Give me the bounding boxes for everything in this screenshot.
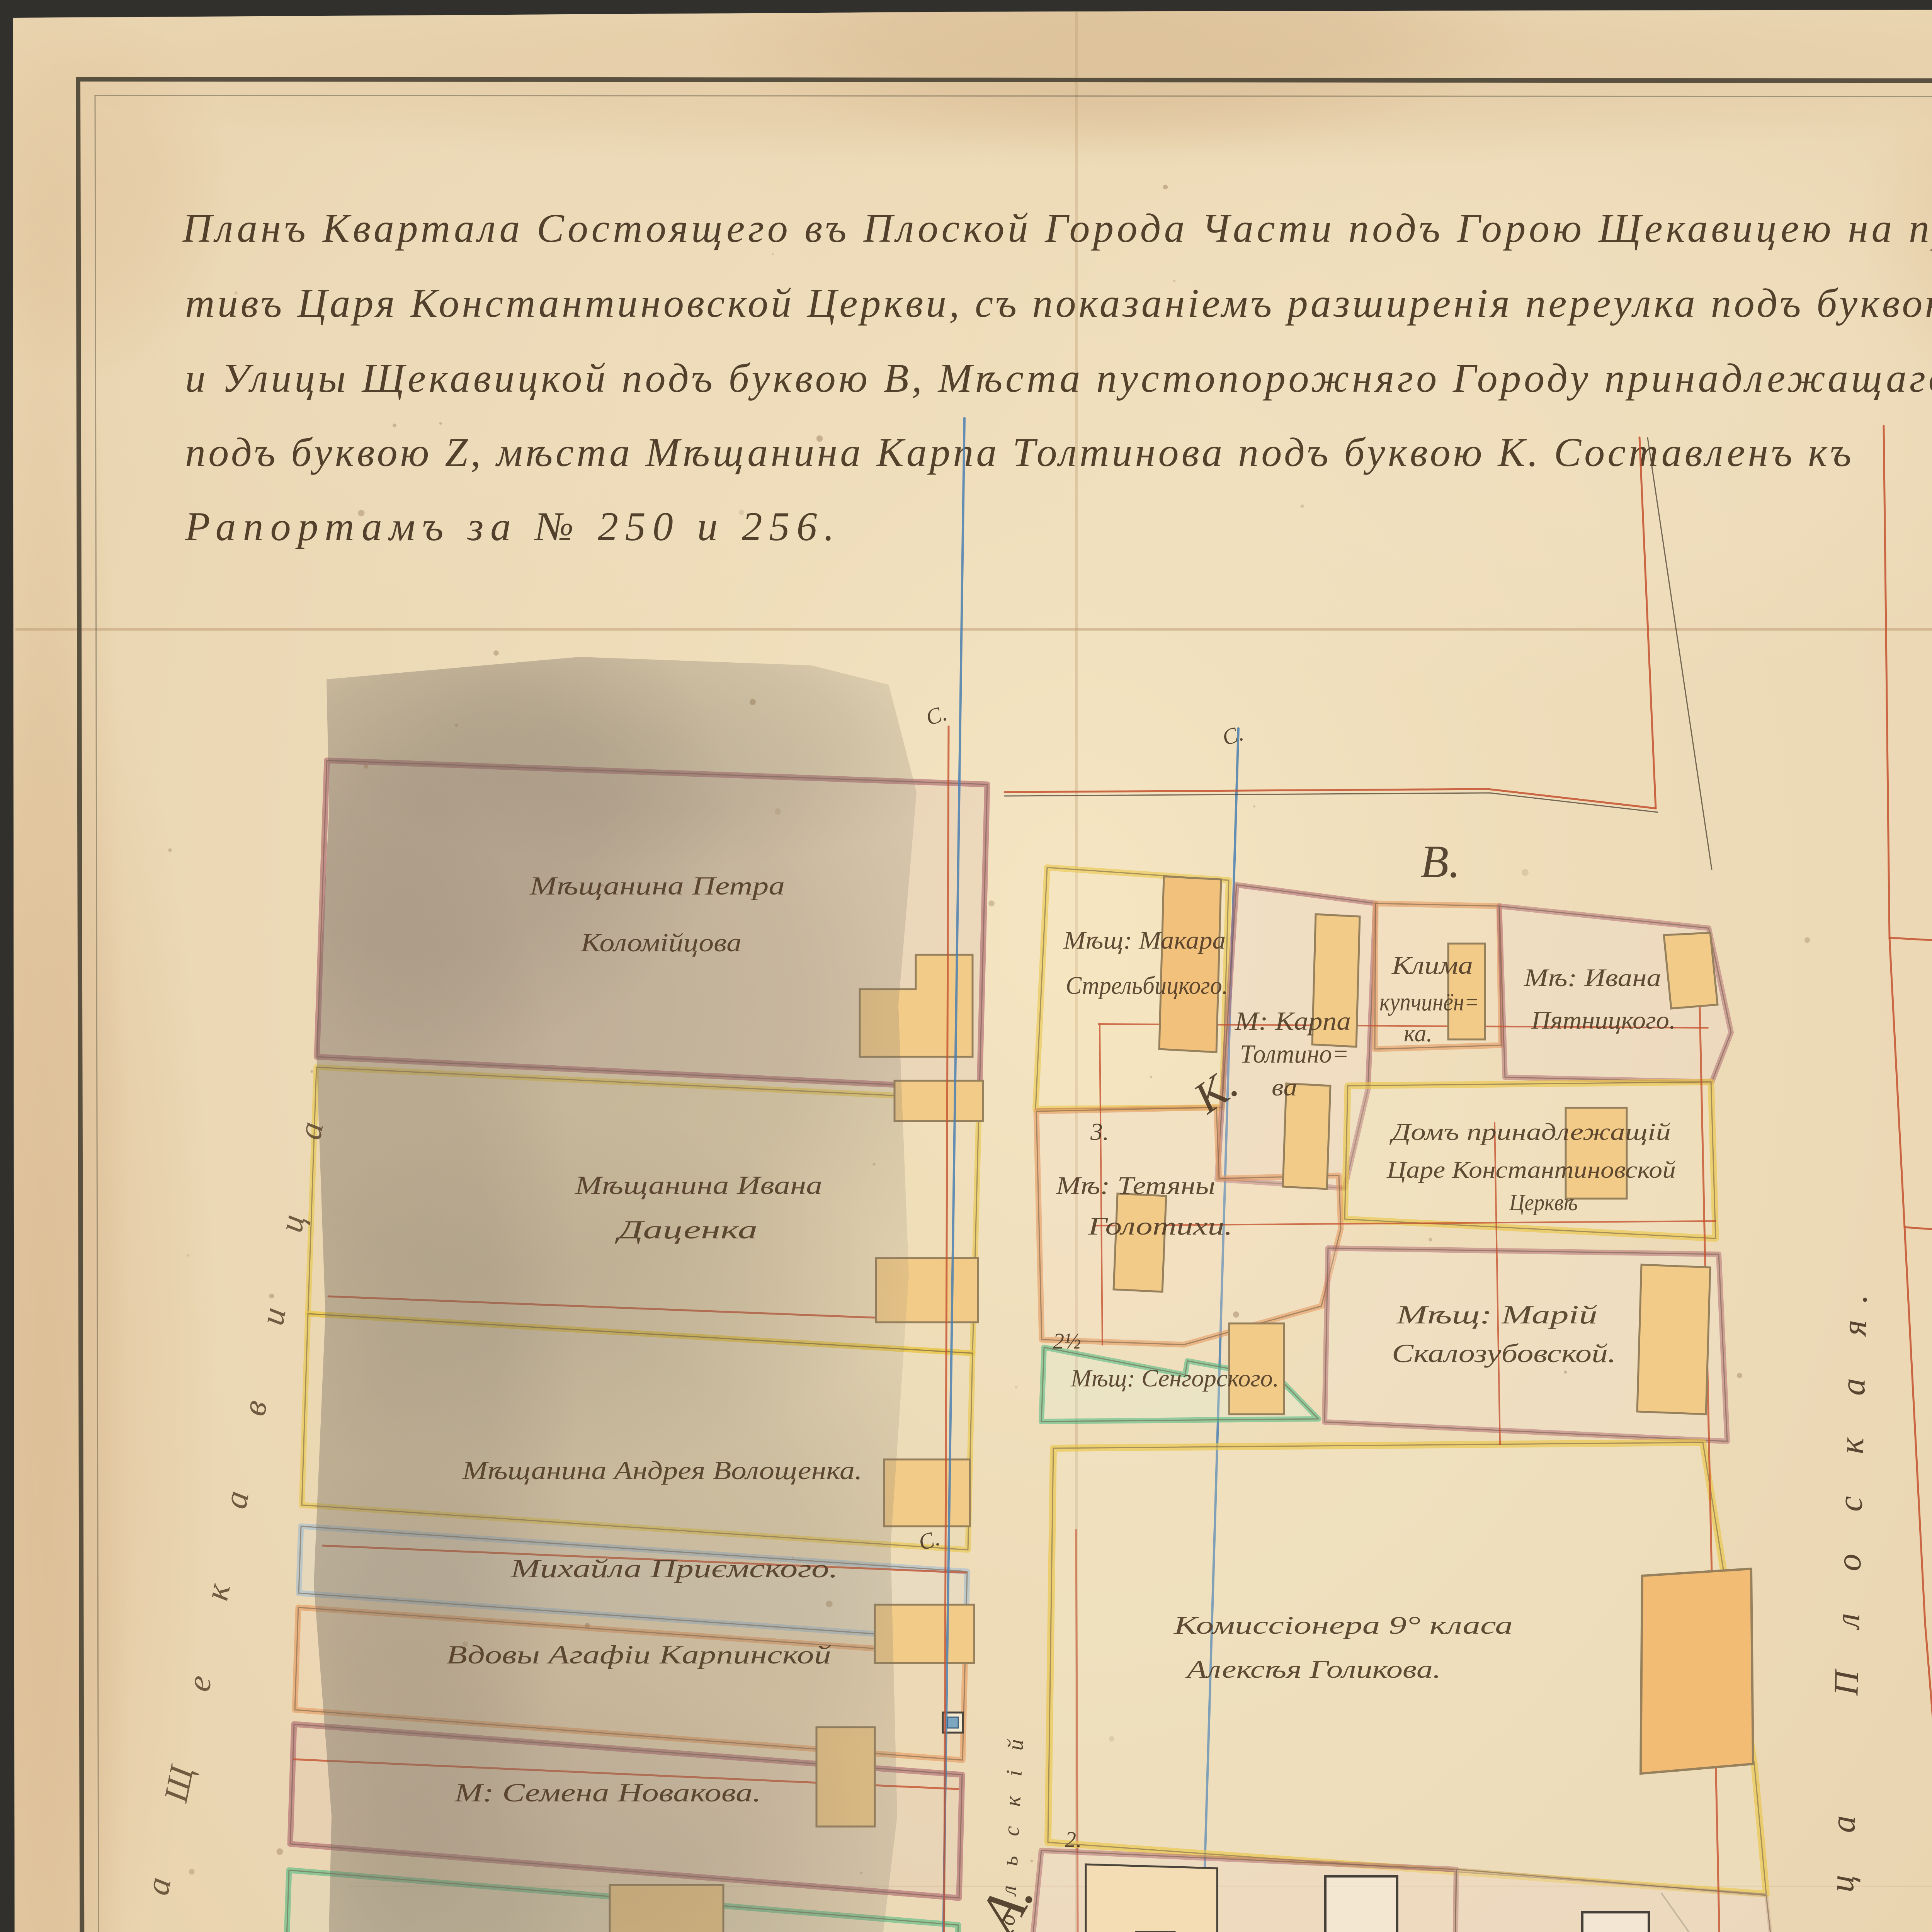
svg-text:Мѣ: Ивана: Мѣ: Ивана xyxy=(1524,964,1661,992)
svg-text:Комиссіонера 9° класа: Комиссіонера 9° класа xyxy=(1173,1611,1513,1639)
svg-text:2½: 2½ xyxy=(1053,1328,1081,1354)
svg-text:Вдовы Агафіи Карпинской: Вдовы Агафіи Карпинской xyxy=(446,1640,831,1669)
svg-text:Мѣщ: Сенгорского.: Мѣщ: Сенгорского. xyxy=(1070,1364,1279,1392)
svg-text:Толтино=: Толтино= xyxy=(1240,1039,1349,1068)
svg-text:тивъ Царя Константиновской: тивъ Царя Константиновской Церкви, съ по… xyxy=(185,281,1932,326)
svg-text:Домъ принадлежащій: Домъ принадлежащій xyxy=(1389,1119,1671,1145)
svg-text:Мѣ: Тетяны: Мѣ: Тетяны xyxy=(1056,1172,1215,1200)
svg-text:Михайла Приємского.: Михайла Приємского. xyxy=(510,1554,838,1583)
svg-text:М: Семена Новакова.: М: Семена Новакова. xyxy=(454,1778,761,1807)
svg-text:Мѣщанина Петра: Мѣщанина Петра xyxy=(529,871,785,900)
svg-text:ва: ва xyxy=(1272,1073,1297,1101)
svg-text:2.: 2. xyxy=(1065,1827,1082,1852)
svg-text:Стрельбицкого.: Стрельбицкого. xyxy=(1066,971,1228,1000)
svg-text:Коломійцова: Коломійцова xyxy=(580,928,742,957)
svg-text:Мѣщанина Андрея Волощенка.: Мѣщанина Андрея Волощенка. xyxy=(462,1456,862,1485)
svg-text:Голотихи.: Голотихи. xyxy=(1088,1212,1233,1240)
svg-text:Скалозубовской.: Скалозубовской. xyxy=(1392,1338,1616,1368)
svg-text:Церквѣ: Церквѣ xyxy=(1509,1190,1578,1215)
svg-text:Мѣщ: Марій: Мѣщ: Марій xyxy=(1396,1300,1597,1329)
svg-text:В.: В. xyxy=(1420,836,1460,887)
svg-text:ка.: ка. xyxy=(1404,1020,1432,1047)
svg-text:Планъ Квартала Состоящего в: Планъ Квартала Состоящего въ Плоской Гор… xyxy=(182,206,1932,251)
svg-text:М: Карпа: М: Карпа xyxy=(1235,1006,1351,1036)
svg-text:Даценка: Даценка xyxy=(615,1215,758,1244)
svg-text:Мѣщ: Макара: Мѣщ: Макара xyxy=(1063,926,1226,954)
svg-text:Домъ Левицкого: Домъ Левицкого xyxy=(1210,1927,1425,1932)
svg-text:Мѣщанина Ивана: Мѣщанина Ивана xyxy=(575,1170,822,1200)
svg-text:купчинён=: купчинён= xyxy=(1379,988,1479,1016)
svg-text:Царе Константиновской: Царе Константиновской xyxy=(1386,1157,1676,1183)
svg-text:подъ буквою Z, мѣста Мѣщан: подъ буквою Z, мѣста Мѣщанина Карпа Толт… xyxy=(185,430,1851,475)
svg-text:Пятницкого.: Пятницкого. xyxy=(1531,1006,1676,1034)
svg-text:Алексѣя Голикова.: Алексѣя Голикова. xyxy=(1185,1655,1441,1684)
svg-text:Клима: Клима xyxy=(1391,951,1473,980)
svg-text:3.: 3. xyxy=(1090,1118,1109,1145)
